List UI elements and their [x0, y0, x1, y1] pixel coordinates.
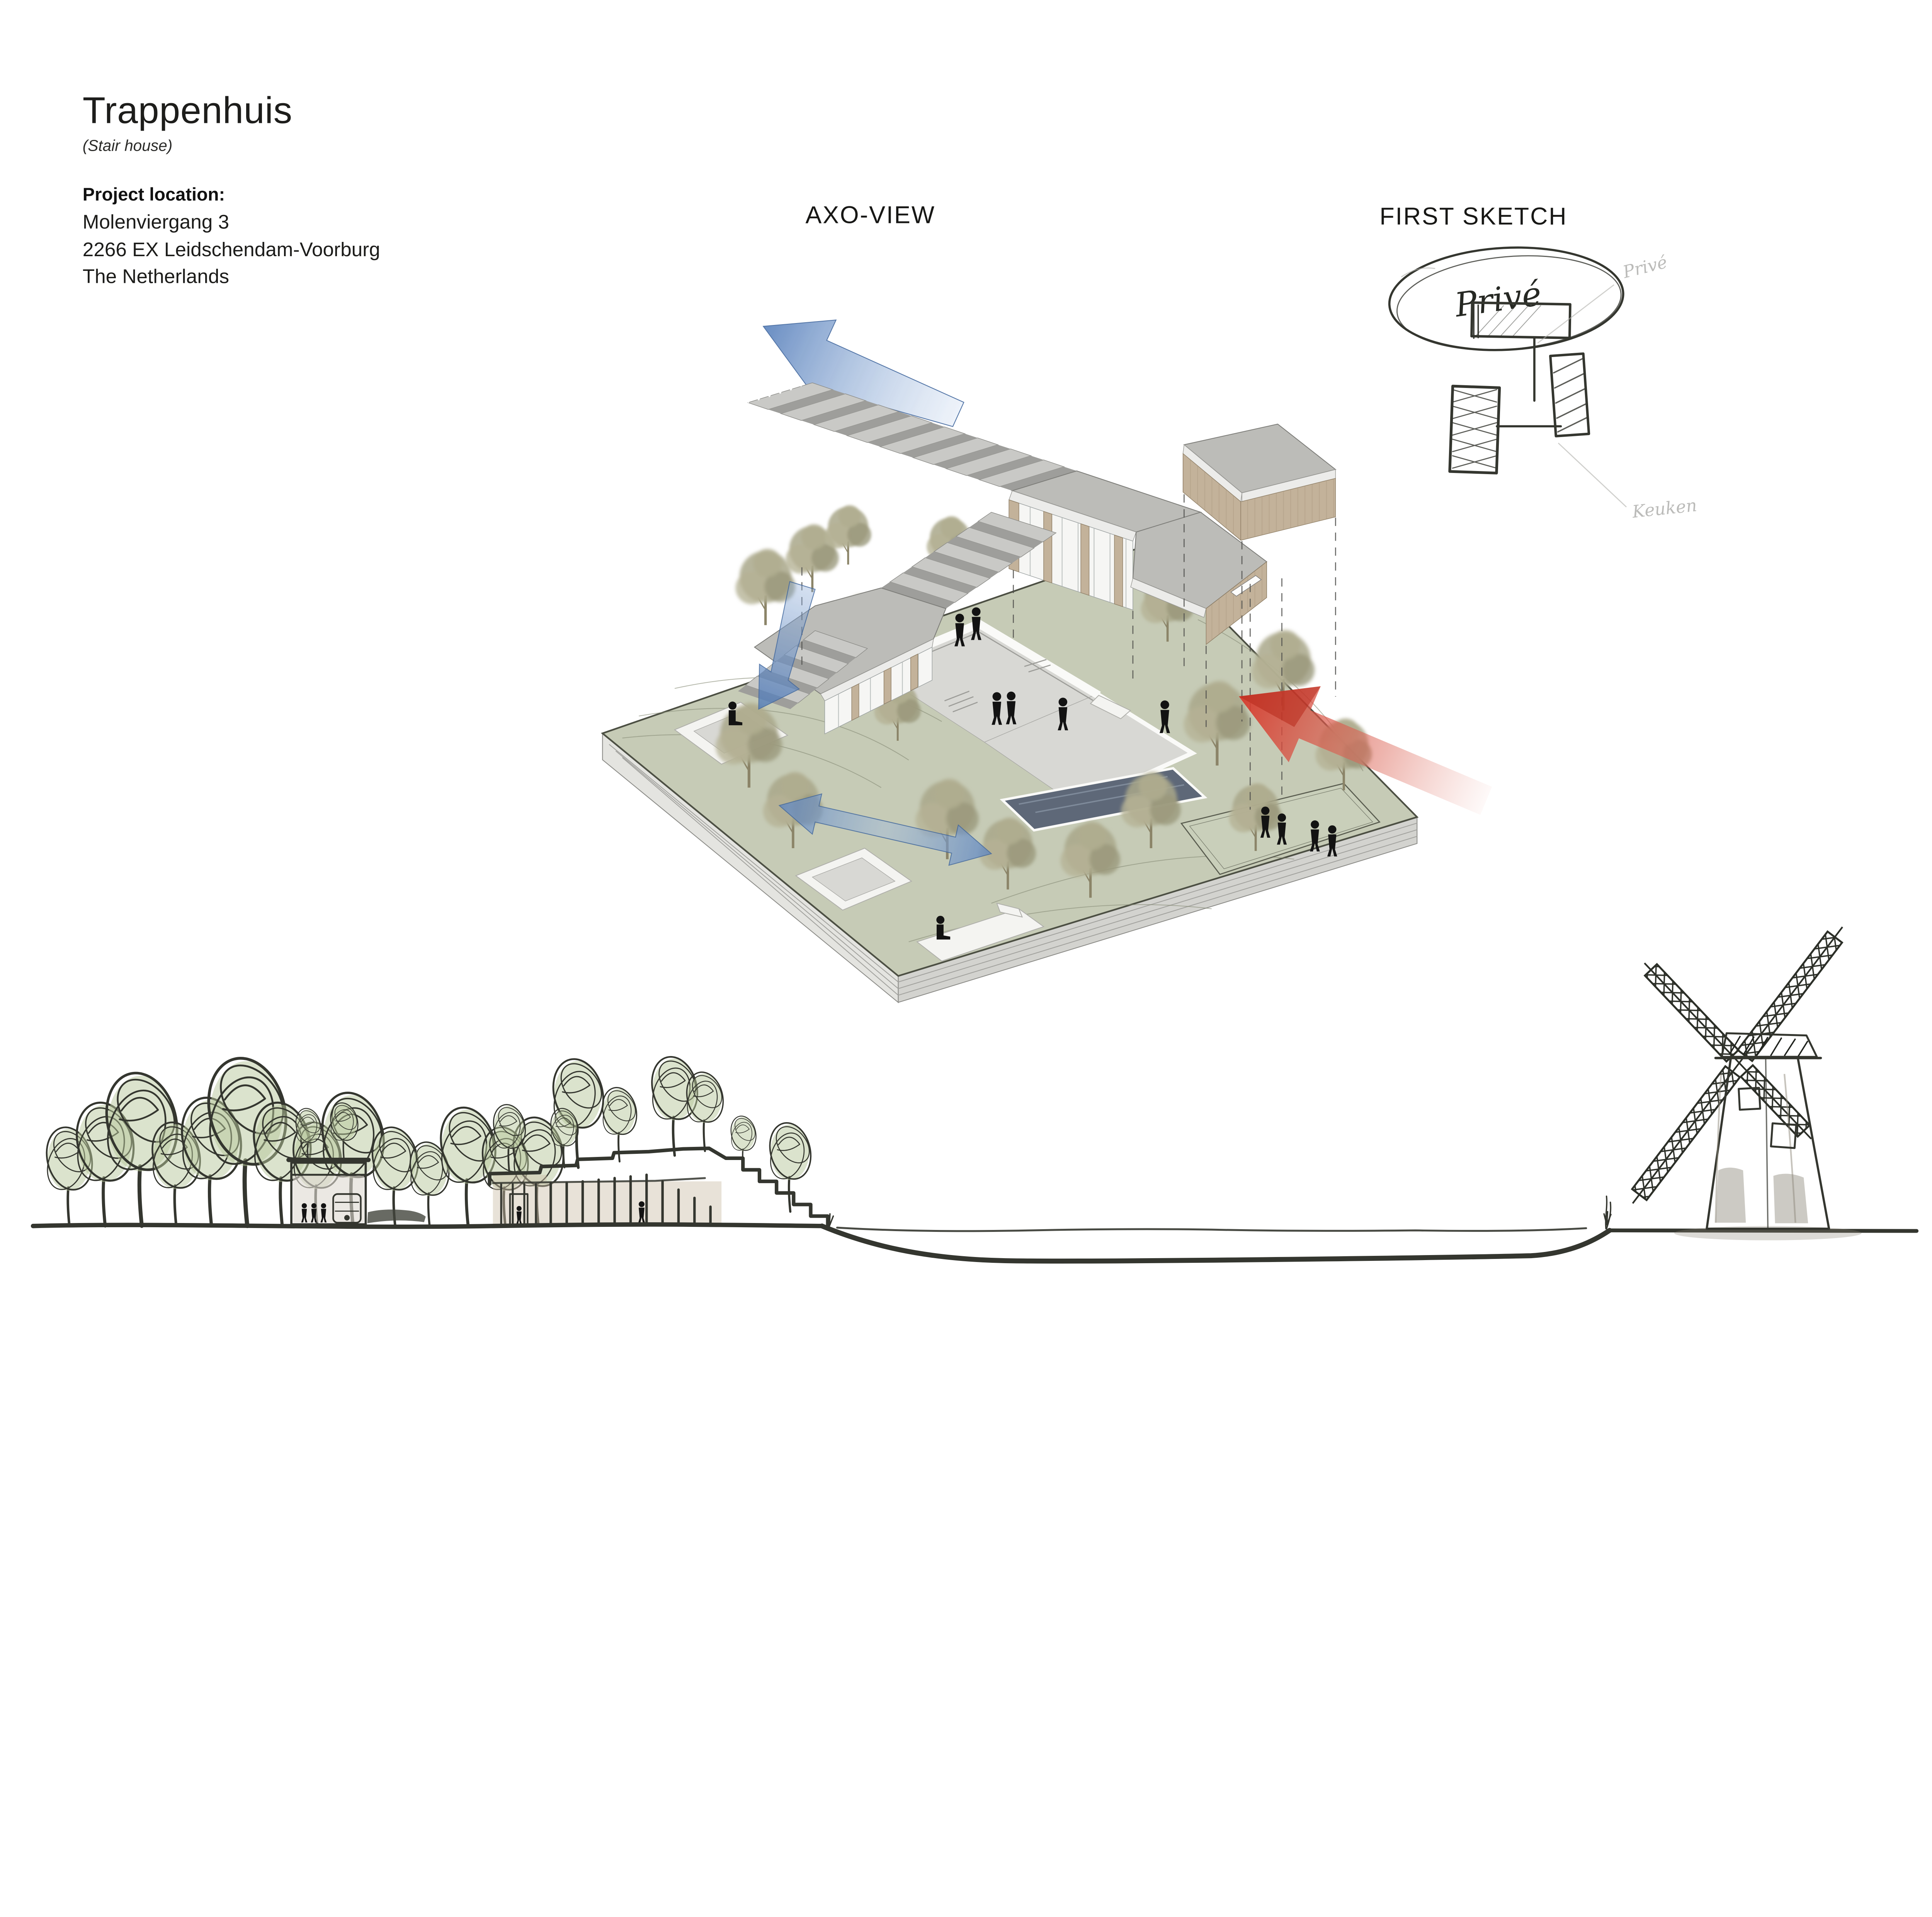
location-label: Project location: [83, 184, 225, 204]
axo-view-label: AXO-VIEW [806, 201, 935, 228]
grass-tufts [827, 1212, 1611, 1226]
page-title: Trappenhuis [83, 89, 293, 131]
windmill [1626, 922, 1862, 1240]
address-line-1: Molenviergang 3 [83, 211, 229, 233]
page-subtitle: (Stair house) [83, 137, 172, 155]
axo-view: AXO-VIEW [602, 201, 1492, 1002]
first-sketch-label: FIRST SKETCH [1379, 203, 1567, 230]
windmill-blades [1626, 922, 1850, 1209]
pencil-note-bottom: Keuken [1631, 495, 1698, 522]
presentation-board: Trappenhuis (Stair house) Project locati… [0, 0, 1932, 1366]
first-sketch: FIRST SKETCH Privé Privé Keuken [1379, 203, 1698, 522]
pencil-note-top: Privé [1621, 252, 1669, 282]
title-block: Trappenhuis (Stair house) Project locati… [83, 89, 380, 287]
address-line-2: 2266 EX Leidschendam-Voorburg [83, 238, 380, 260]
hedge-shadow [367, 1209, 426, 1223]
sketch-plan-diagram [1401, 268, 1626, 507]
address-line-3: The Netherlands [83, 265, 229, 287]
